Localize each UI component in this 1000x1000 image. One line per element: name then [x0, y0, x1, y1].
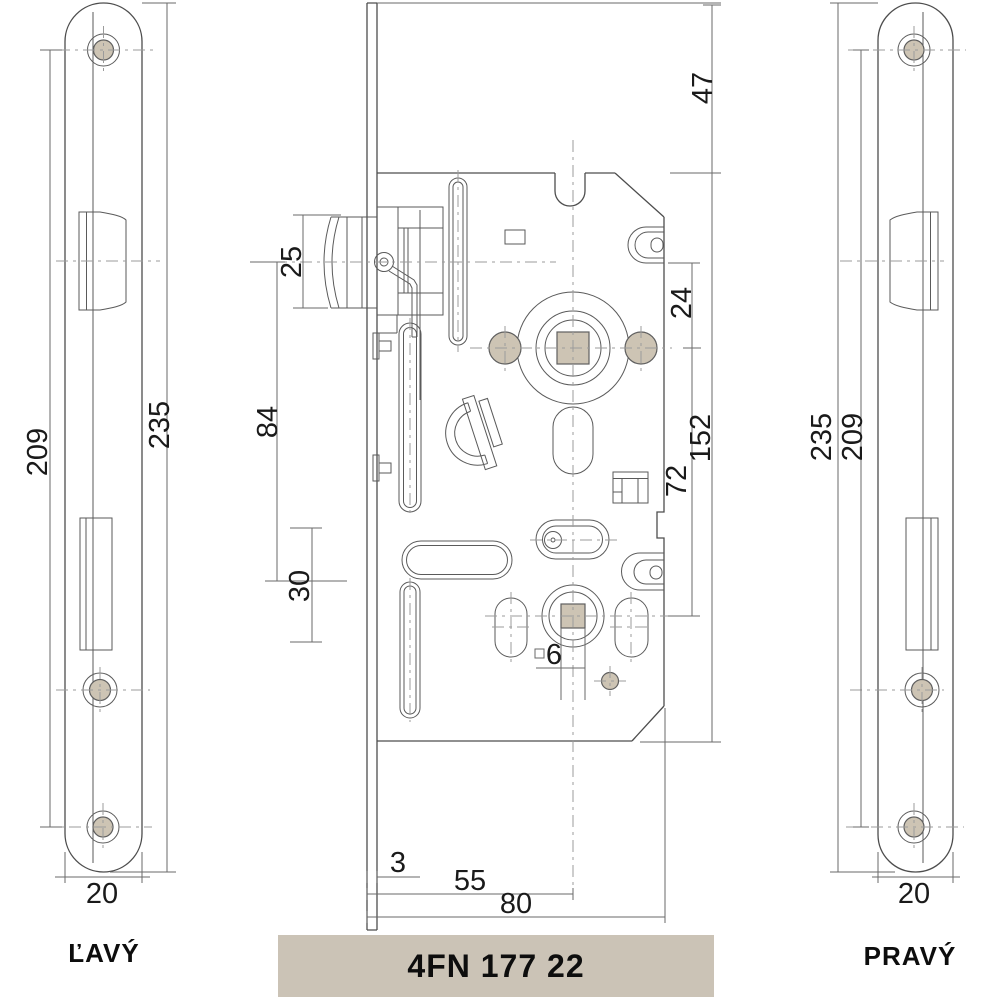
dim-235-right: 235 [806, 413, 838, 461]
dim-20-left: 20 [86, 878, 118, 910]
dim-209-left: 209 [22, 428, 54, 476]
lock-drawing-svg: 209 235 20 25 84 30 47 24 152 72 6 3 55 … [0, 0, 1000, 1000]
right-plate-bolt-cutout [906, 518, 938, 650]
dim-152-case-height: 152 [685, 414, 717, 462]
case-centerlines [250, 140, 672, 894]
dim-20-right: 20 [898, 878, 930, 910]
dimension-labels: 209 235 20 25 84 30 47 24 152 72 6 3 55 … [22, 72, 930, 920]
latch-lever [389, 266, 417, 337]
case-rect-detail [505, 230, 525, 244]
faceplate-bracket-upper [373, 333, 391, 359]
dim-72-hub-distance: 72 [661, 465, 693, 497]
right-plate-label: PRAVÝ [840, 941, 980, 972]
product-code-badge: 4FN 177 22 [278, 935, 714, 997]
dim-80-depth: 80 [500, 888, 532, 920]
dim-6-spindle: 6 [546, 639, 562, 671]
faceplate-bracket-lower [373, 455, 391, 481]
spring-fan [436, 392, 508, 478]
left-plate-bolt-cutout [80, 518, 112, 650]
latch-housing [375, 207, 444, 400]
dim-24-hub-offset: 24 [666, 287, 698, 319]
product-code-text: 4FN 177 22 [407, 948, 584, 985]
square-bracket-detail [613, 472, 648, 503]
right-plate-outline [878, 3, 953, 872]
faceplate [367, 3, 377, 930]
dim-25-latch: 25 [276, 246, 308, 278]
dim-235-left: 235 [144, 401, 176, 449]
lower-hub [495, 585, 648, 690]
dim-30-bolt: 30 [284, 570, 316, 602]
edge-slot-top [628, 227, 664, 263]
dim-55-backset: 55 [454, 865, 486, 897]
dim-3-faceplate: 3 [390, 847, 406, 879]
dim-47-top: 47 [687, 72, 719, 104]
edge-slot-bottom [622, 553, 664, 590]
left-plate-outline [65, 3, 142, 872]
square-symbol [535, 649, 544, 658]
lock-body [250, 3, 721, 930]
left-plate-label: ĽAVÝ [39, 938, 169, 969]
case-dimensions [250, 3, 721, 923]
slot-horizontal [402, 541, 512, 579]
dim-209-right: 209 [837, 413, 869, 461]
dim-84-latch-to-bolt: 84 [252, 406, 284, 438]
technical-drawing-page: 209 235 20 25 84 30 47 24 152 72 6 3 55 … [0, 0, 1000, 1000]
